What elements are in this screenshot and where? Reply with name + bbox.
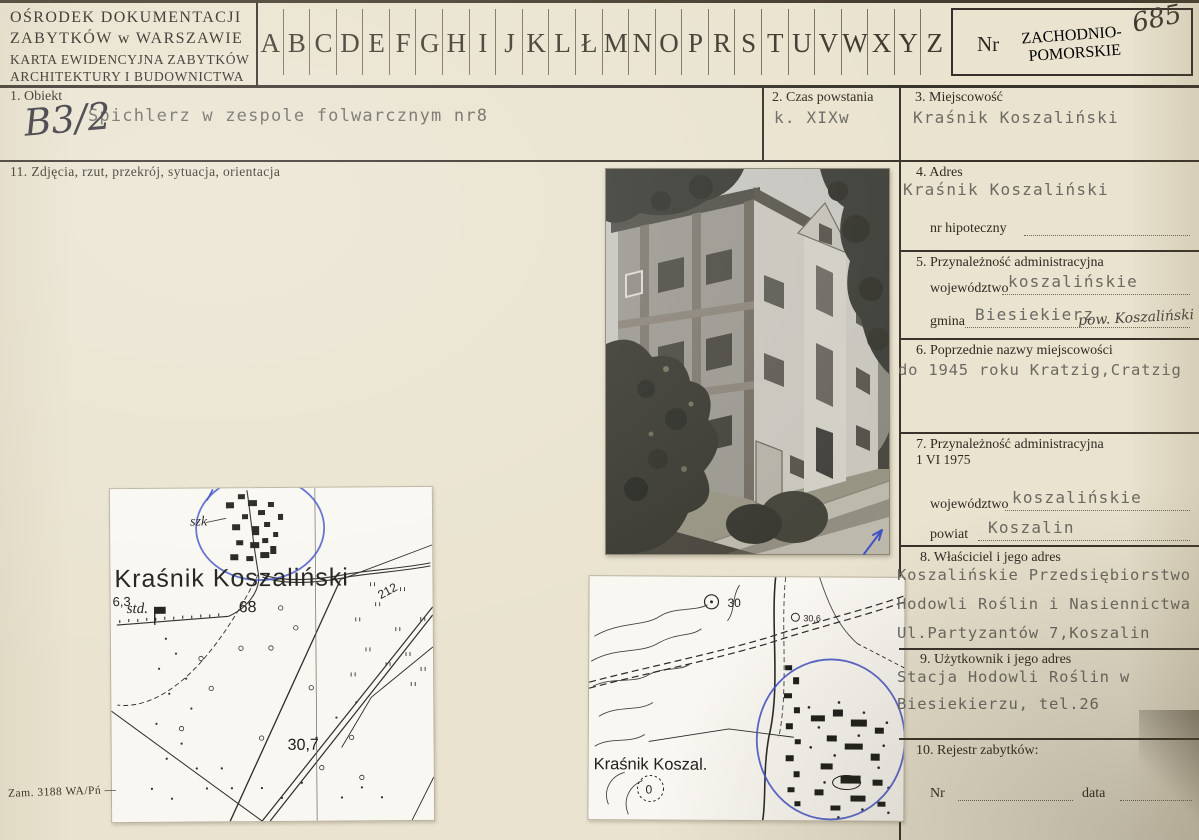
index-letter: V: [815, 3, 842, 83]
field6-label: 6. Poprzednie nazwy miejscowości: [916, 343, 1113, 359]
map-bottom-town-label: Kraśnik Koszal.: [594, 755, 708, 774]
map-bottom-elevation-1: 30: [727, 596, 741, 610]
map-left-elevation-2: 68: [239, 599, 257, 616]
alphabet-index-strip: A B C D E F G H I J K L Ł M N O P R S T …: [257, 3, 948, 83]
index-letter: F: [390, 3, 417, 83]
field7-wojewodztwo-label: województwo: [930, 497, 1009, 513]
index-letter: T: [762, 3, 789, 83]
header-bottom-rule: [0, 85, 1199, 88]
blue-arrow-annotation: [858, 522, 892, 558]
index-letter: X: [868, 3, 895, 83]
field7-powiat-line: [978, 540, 1190, 541]
index-letter: P: [682, 3, 709, 83]
field9-label: 9. Użytkownik i jego adres: [920, 652, 1071, 668]
field7-bottom-rule: [899, 545, 1199, 547]
field2-label: 2. Czas powstania: [772, 90, 873, 106]
situation-map-left-art: std. szk Kraśnik Koszaliński 6,3 68 212 …: [110, 487, 434, 822]
field2-value: k. XIXw: [774, 108, 850, 127]
map-bottom-number: 0: [645, 782, 652, 796]
index-letter: O: [656, 3, 683, 83]
index-letter: J: [496, 3, 523, 83]
field8-label: 8. Właściciel i jego adres: [920, 550, 1061, 566]
field9-line-1: Stacja Hodowli Roślin w: [897, 668, 1130, 686]
field5-wojewodztwo-value: koszalińskie: [1008, 272, 1138, 291]
field6-value: do 1945 roku Kratzig,Cratzig: [898, 361, 1182, 379]
field5-gmina-line: [965, 327, 1190, 328]
record-card: OŚRODEK DOKUMENTACJI ZABYTKÓW w WARSZAWI…: [0, 0, 1199, 840]
map-left-elevation-4: 30,7: [288, 737, 319, 754]
field10-nr-label: Nr: [930, 786, 945, 802]
field8-line-2: Hodowli Roślin i Nasiennictwa: [897, 595, 1191, 613]
map-left-szk-label: szk: [190, 514, 208, 529]
index-letter: H: [443, 3, 470, 83]
index-letter: I: [470, 3, 497, 83]
card-title-line-2: ARCHITEKTURY I BUDOWNICTWA: [10, 68, 249, 85]
field7-powiat-label: powiat: [930, 527, 968, 543]
field8-bottom-rule: [899, 648, 1199, 650]
index-letter: K: [523, 3, 550, 83]
field1-field2-divider: [762, 85, 764, 160]
situation-map-left: std. szk Kraśnik Koszaliński 6,3 68 212 …: [109, 486, 435, 823]
field5-bottom-rule: [899, 338, 1199, 340]
field4-label: 4. Adres: [916, 165, 963, 181]
situation-map-bottom-art: 30 30,6 Kraśnik Koszal. 0: [588, 576, 904, 821]
index-letter: Y: [895, 3, 922, 83]
field5-handwritten-note: pow. Koszaliński: [1078, 307, 1195, 329]
index-letter: B: [284, 3, 311, 83]
field5-label: 5. Przynależność administracyjna: [916, 255, 1104, 271]
map-left-elevation-1: 6,3: [113, 594, 131, 609]
index-letter: R: [709, 3, 736, 83]
field7-wojewodztwo-value: koszalińskie: [1012, 488, 1142, 507]
index-letter: D: [337, 3, 364, 83]
situation-map-bottom: 30 30,6 Kraśnik Koszal. 0: [587, 575, 905, 822]
field7-label-date: 1 VI 1975: [916, 452, 971, 468]
voivodeship-stamp: ZACHODNIO- POMORSKIE: [1021, 24, 1124, 67]
field5-wojewodztwo-label: województwo: [930, 281, 1009, 297]
field4-bottom-rule: [899, 250, 1199, 252]
row2-bottom-rule: [0, 160, 1199, 162]
map-bottom-elevation-2: 30,6: [803, 613, 821, 623]
field4-value: Kraśnik Koszaliński: [903, 180, 1109, 199]
index-letter: C: [310, 3, 337, 83]
field8-line-1: Koszalińskie Przedsiębiorstwo: [897, 566, 1191, 584]
org-line-2: ZABYTKÓW w WARSZAWIE: [10, 28, 243, 49]
index-letter: U: [789, 3, 816, 83]
field6-bottom-rule: [899, 432, 1199, 434]
index-letter: Z: [921, 3, 948, 83]
field5-gmina-label: gmina: [930, 314, 965, 330]
scan-corner-shadow: [1139, 710, 1199, 840]
field7-powiat-value: Koszalin: [988, 518, 1075, 537]
field1-handwritten-note: B3/2: [22, 94, 112, 144]
card-title-line-1: KARTA EWIDENCYJNA ZABYTKÓW: [10, 51, 249, 68]
field11-label: 11. Zdjęcia, rzut, przekrój, sytuacja, o…: [10, 164, 280, 180]
index-letter: A: [257, 3, 284, 83]
index-letter: Ł: [576, 3, 603, 83]
index-letter: G: [416, 3, 443, 83]
header-org-block: OŚRODEK DOKUMENTACJI ZABYTKÓW w WARSZAWI…: [10, 7, 243, 49]
index-letter: L: [549, 3, 576, 83]
index-letter: E: [363, 3, 390, 83]
field3-value: Kraśnik Koszaliński: [913, 108, 1119, 127]
field10-label: 10. Rejestr zabytków:: [916, 743, 1038, 759]
index-letter: M: [603, 3, 630, 83]
field1-value: Spichlerz w zespole folwarcznym nr8: [88, 106, 488, 126]
field10-data-label: data: [1082, 786, 1105, 802]
index-letter: S: [735, 3, 762, 83]
map-left-town-label: Kraśnik Koszaliński: [114, 563, 349, 593]
field7-wojewodztwo-line: [1005, 510, 1190, 511]
field4-hipoteczny-label: nr hipoteczny: [930, 221, 1007, 237]
field10-nr-line: [958, 800, 1073, 801]
building-photo-art: [606, 169, 889, 554]
field7-label: 7. Przynależność administracyjna: [916, 437, 1104, 453]
index-letter: W: [842, 3, 869, 83]
map-left-elevation-3: 212: [375, 580, 400, 602]
field4-hipoteczny-line: [1024, 235, 1190, 236]
building-photo: [605, 168, 890, 555]
field9-line-2: Biesiekierzu, tel.26: [897, 695, 1100, 713]
nr-label: Nr: [977, 32, 999, 57]
field8-line-3: Ul.Partyzantów 7,Koszalin: [897, 624, 1150, 642]
field5-wojewodztwo-line: [1002, 294, 1190, 295]
print-order-note: Zam. 3188 WA/Pń —: [8, 784, 117, 800]
header-card-title: KARTA EWIDENCYJNA ZABYTKÓW ARCHITEKTURY …: [10, 51, 249, 85]
index-letter: N: [629, 3, 656, 83]
field3-label: 3. Miejscowość: [915, 90, 1003, 106]
field5-gmina-value: Biesiekierz: [975, 305, 1094, 324]
org-line-1: OŚRODEK DOKUMENTACJI: [10, 7, 243, 28]
